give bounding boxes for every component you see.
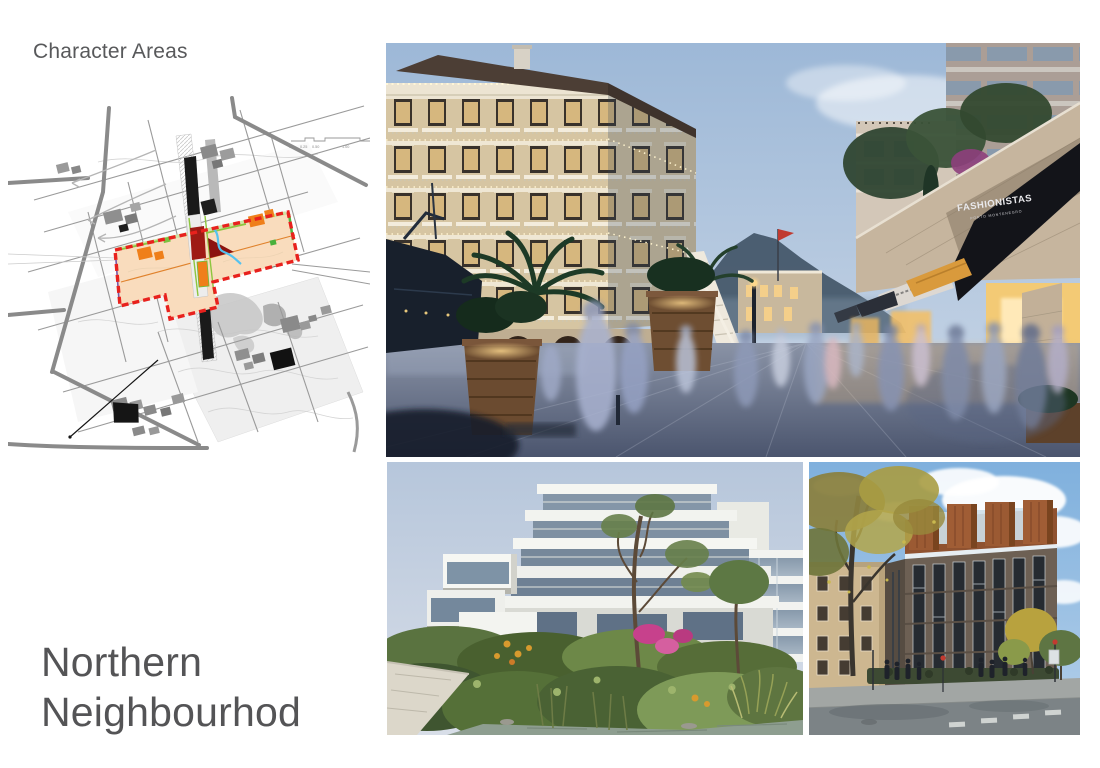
scale-label-0: 0.0 [289, 145, 294, 149]
section-title-line2: Neighbourhod [41, 687, 301, 737]
slide-character-areas: Character Areas [0, 0, 1100, 768]
map-scale-bar: 0.0 0.25 0.50 1.00 [289, 138, 370, 149]
page-title: Character Areas [33, 40, 188, 64]
tree-shadow [829, 704, 949, 720]
scale-label-025: 0.25 [300, 145, 307, 149]
photo-evening-promenade: FASHIONISTAS PORTO MONTENEGRO [386, 43, 1080, 457]
scale-label-100: 1.00 [342, 145, 349, 149]
photo-brick-corten-apartments [809, 462, 1080, 735]
masterplan-drawing: 0.0 0.25 0.50 1.00 [8, 92, 370, 455]
section-title: Northern Neighbourhod [41, 637, 301, 737]
character-areas-map: 0.0 0.25 0.50 1.00 [8, 92, 370, 455]
photo-white-terraced-apartments [387, 462, 803, 735]
section-title-line1: Northern [41, 637, 301, 687]
scale-label-050: 0.50 [312, 145, 319, 149]
